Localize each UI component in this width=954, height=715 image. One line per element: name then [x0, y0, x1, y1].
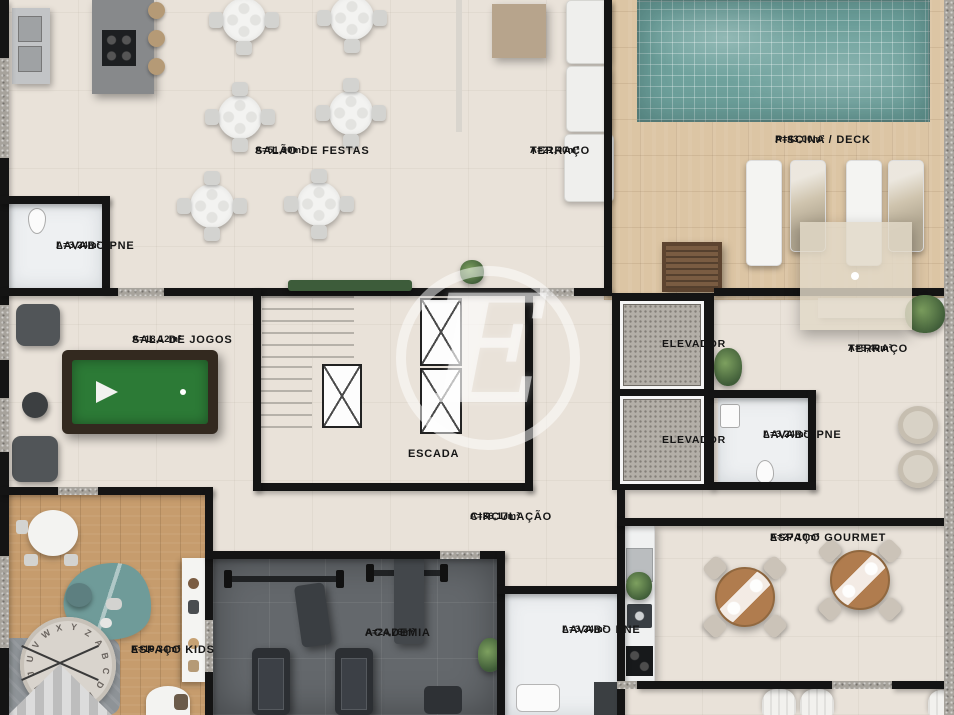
treadmill-belt	[258, 658, 284, 710]
plant	[626, 572, 652, 600]
coffee-table	[492, 4, 546, 58]
dining-table	[324, 0, 380, 46]
window	[0, 58, 9, 158]
rug-letter: U	[25, 655, 36, 663]
barbell-plate	[336, 570, 344, 588]
bathroom-sink	[516, 684, 560, 712]
wall-lavabo2-top	[710, 390, 816, 398]
gourmet-cooktop	[626, 646, 653, 676]
rattan-chair	[898, 406, 938, 444]
wall-kids-right	[205, 487, 213, 715]
stair-treads	[258, 366, 312, 432]
window	[58, 487, 98, 495]
shaft-void	[420, 298, 462, 366]
stair-treads	[262, 296, 354, 366]
lounge-chair	[762, 689, 796, 715]
barbell-plate	[366, 564, 374, 582]
canopy-center-dot	[851, 272, 859, 280]
wall-right-edge	[944, 0, 954, 715]
kids-table	[28, 510, 78, 556]
window	[832, 681, 892, 689]
wall-terraco-deck	[604, 0, 612, 296]
rug-letter: C	[100, 667, 111, 675]
rug-letter: X	[55, 622, 63, 633]
swimming-pool	[637, 0, 930, 122]
sun-lounger	[746, 160, 782, 266]
toy	[106, 598, 122, 610]
plant	[714, 348, 742, 386]
gourmet-table	[830, 550, 890, 610]
rug-letter: B	[99, 652, 110, 661]
lounge-chair	[800, 689, 834, 715]
toy-rocker	[174, 694, 188, 710]
dining-table	[323, 85, 379, 141]
window	[0, 556, 9, 648]
rug-letter: D	[94, 679, 106, 690]
wall-lavabo2-bottom	[710, 482, 816, 490]
pool-table-felt	[72, 360, 208, 424]
kids-chair	[24, 554, 38, 566]
wall-gourmet-bottom	[637, 681, 832, 689]
toy	[100, 618, 112, 628]
shelf-item	[188, 660, 199, 672]
flat-bench	[424, 686, 462, 714]
window	[617, 681, 637, 689]
rug-letter: Z	[83, 627, 93, 638]
barbell-rack-bar	[226, 576, 342, 582]
dining-table	[216, 0, 272, 48]
bathroom-counter	[594, 682, 617, 715]
wall-academia-right	[497, 551, 505, 715]
door	[440, 551, 480, 559]
window	[0, 398, 9, 452]
wall-escada-right	[525, 288, 533, 491]
wall-light-divider	[456, 0, 462, 132]
window	[118, 288, 164, 296]
gourmet-table	[715, 567, 775, 627]
armchair	[12, 436, 58, 482]
wooden-grill-box	[662, 242, 722, 292]
stair-void	[322, 364, 362, 428]
plant	[460, 260, 484, 284]
shaft-void	[420, 368, 462, 434]
kids-chair	[64, 554, 78, 566]
window	[0, 305, 9, 360]
sink-basin	[18, 46, 42, 72]
bar-stool	[148, 30, 165, 47]
shelf-item	[188, 578, 199, 589]
rug-letter: Y	[70, 622, 78, 633]
floor-plan: UVWXYZABCDEFGHIJ	[0, 0, 954, 715]
window	[540, 288, 574, 296]
kids-chair	[16, 520, 28, 534]
barbell-plate	[224, 570, 232, 588]
side-table	[22, 392, 48, 418]
wall-lavabo1-top	[0, 196, 110, 204]
toilet	[756, 460, 774, 484]
wall-kids-top	[0, 487, 213, 495]
dining-table	[184, 178, 240, 234]
shelf-item	[188, 600, 199, 614]
bathroom-sink	[720, 404, 740, 428]
sink-basin	[18, 16, 42, 42]
bar-stool	[148, 2, 165, 19]
hedge-planter	[288, 280, 412, 291]
rug-letter: W	[39, 628, 52, 641]
wall-escada-bottom	[253, 483, 533, 491]
dining-table	[212, 89, 268, 145]
barbell-plate	[440, 564, 448, 582]
cue-ball	[180, 389, 186, 395]
cooktop	[102, 30, 136, 66]
bar-stool	[148, 58, 165, 75]
wall-escada-left	[253, 288, 261, 491]
treadmill-belt	[341, 658, 367, 710]
dining-table	[291, 176, 347, 232]
rattan-chair	[898, 450, 938, 488]
armchair	[16, 304, 60, 346]
pouf	[66, 583, 92, 607]
wall-lavabo3-top	[497, 586, 625, 594]
wall-gourmet-top	[617, 518, 954, 526]
